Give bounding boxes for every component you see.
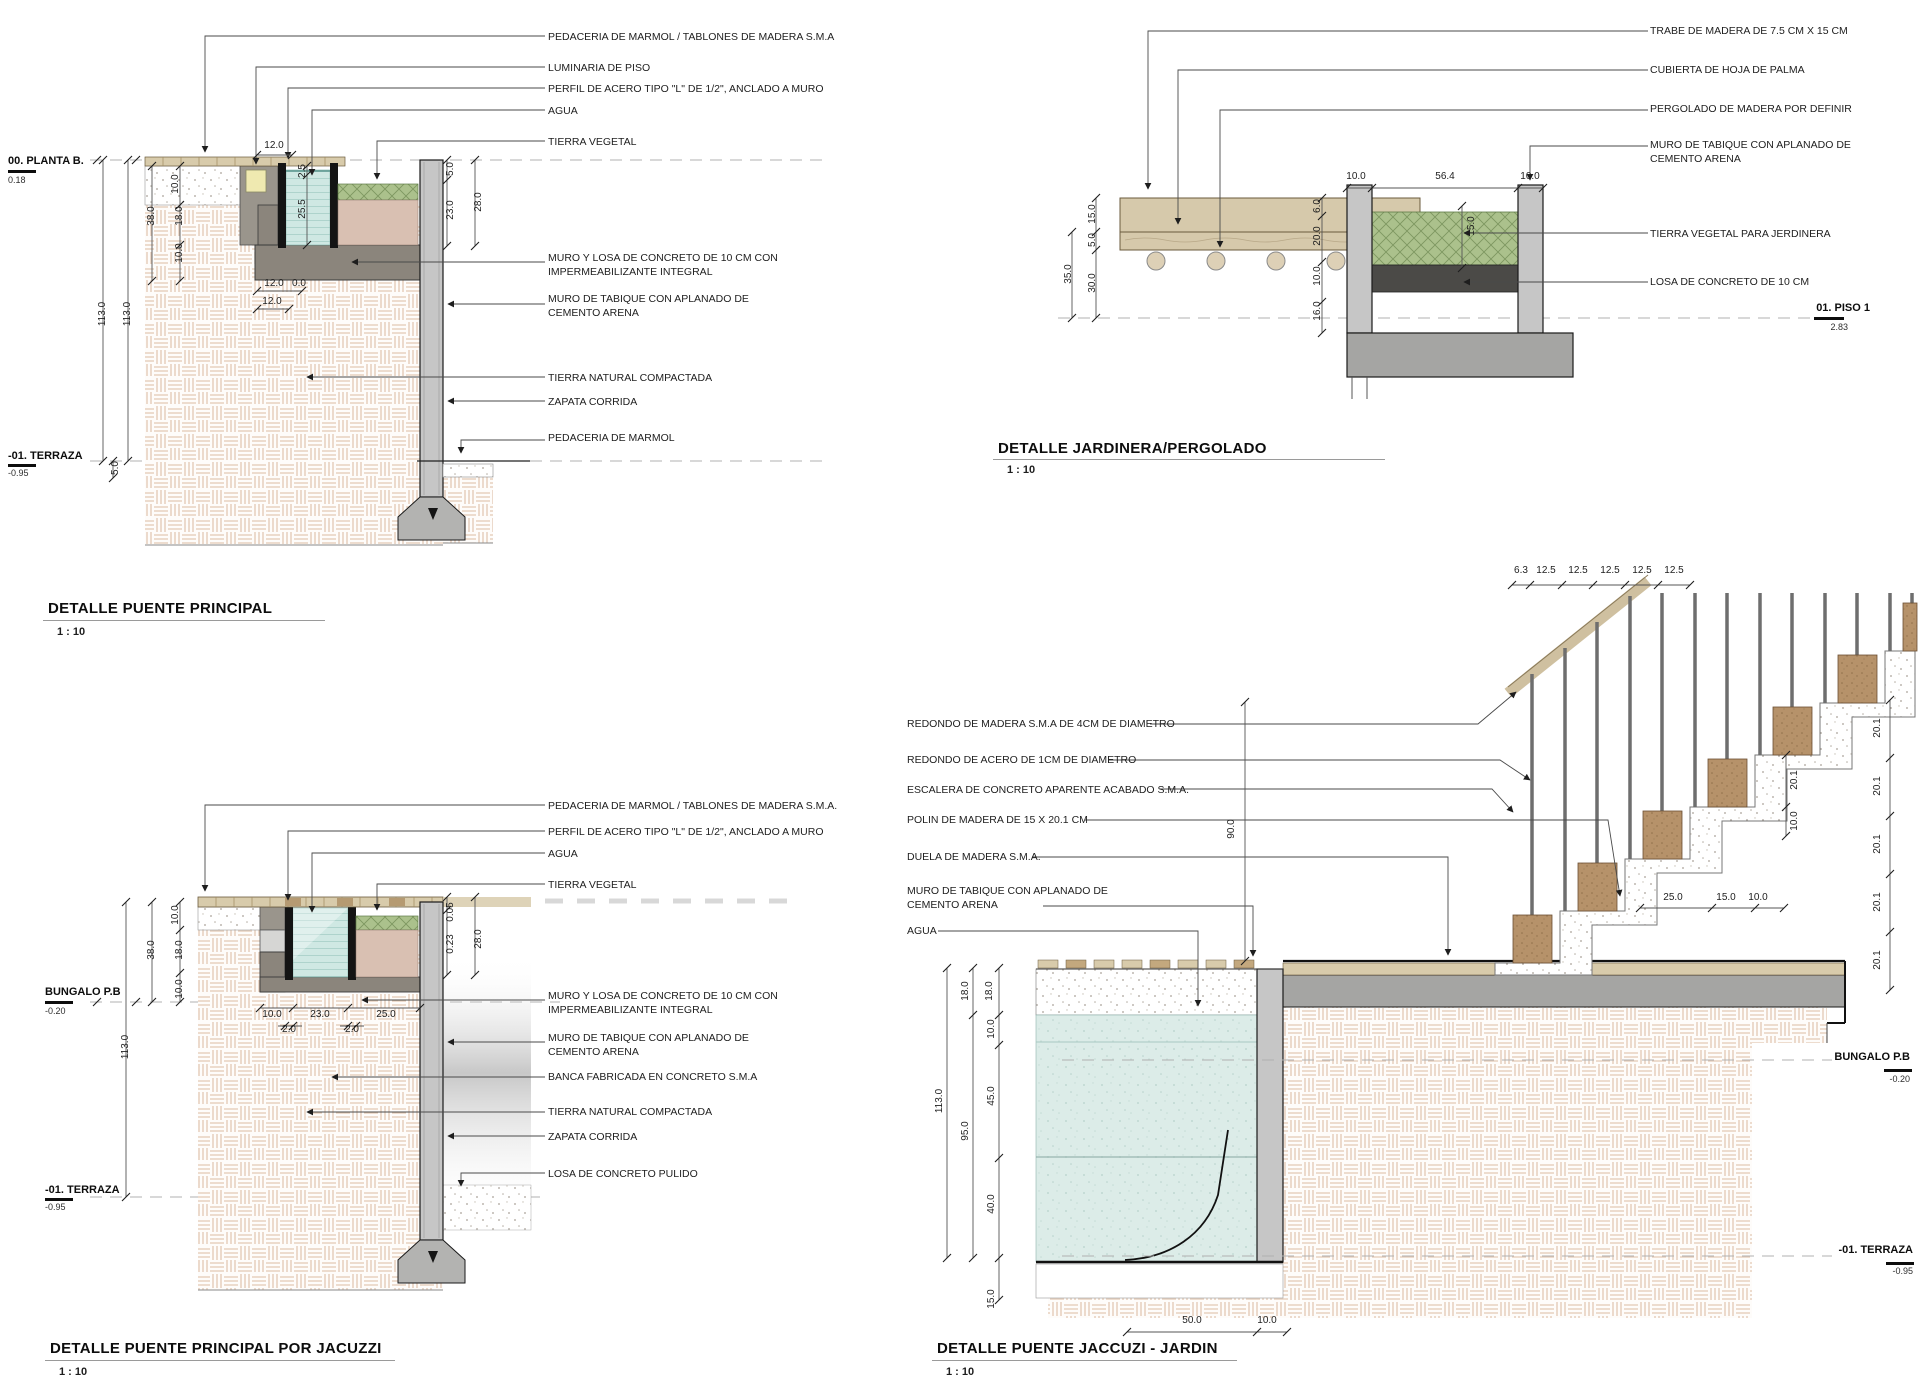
dim-label: 113.0 (123, 291, 133, 337)
level-marker-planta-baja: 00. PLANTA B. (8, 155, 84, 167)
jacuzzi-base-slab (1036, 1264, 1283, 1298)
dim-label: 25.0 (1650, 893, 1696, 903)
level-value: -0.20 (45, 1006, 66, 1016)
dim-label: 30.0 (1088, 260, 1098, 306)
dim-label: 50.0 (1169, 1316, 1215, 1326)
detail-scale: 1 : 10 (59, 1366, 87, 1378)
pool-wall-right (330, 163, 338, 248)
dim-label: 5.0 (111, 445, 121, 491)
dim-label: 38.0 (147, 927, 157, 973)
detail-title: DETALLE PUENTE JACCUZI - JARDIN (937, 1340, 1218, 1357)
dim-label: 10.0 (1507, 172, 1553, 182)
title-rule (45, 1360, 395, 1361)
dim-label: 23.0 (297, 1010, 343, 1020)
callout: BANCA FABRICADA EN CONCRETO S.M.A (548, 1071, 757, 1085)
polished-slab (443, 1185, 531, 1230)
detail-title: DETALLE PUENTE PRINCIPAL POR JACUZZI (50, 1340, 382, 1357)
dim-label: 20.1 (1873, 705, 1883, 751)
level-marker-terraza: -01. TERRAZA (8, 450, 83, 462)
level-bar (45, 1198, 73, 1201)
callout: PERGOLADO DE MADERA POR DEFINIR (1650, 103, 1860, 117)
dim-label: 0.23 (446, 921, 456, 967)
detail-puente-principal-drawing (90, 36, 822, 545)
callout: PEDACERIA DE MARMOL / TABLONES DE MADERA… (548, 31, 834, 45)
dim-label: 16.0 (1313, 288, 1323, 334)
dim-label: 40.0 (987, 1181, 997, 1227)
jacuzzi-rim-concrete (1036, 969, 1283, 1015)
planter-soil (338, 184, 418, 200)
level-marker-bungalo: BUNGALO P.B (1760, 1051, 1910, 1063)
dim-label: 25.5 (298, 186, 308, 232)
planter-wall-left (1347, 185, 1372, 333)
dim-label: 90.0 (1227, 806, 1237, 852)
planter-wall-right (1518, 185, 1543, 333)
concrete-topping (145, 166, 245, 205)
dim-label: 10.0 (175, 230, 185, 276)
concrete-base (1347, 333, 1573, 377)
dim-label: 20.1 (1873, 879, 1883, 925)
concrete-topping (198, 907, 260, 930)
drawing-linework (0, 0, 1920, 1382)
dim-label: 12.0 (249, 297, 295, 307)
callout: REDONDO DE MADERA S.M.A DE 4CM DE DIAMET… (907, 718, 1175, 732)
callout: TIERRA NATURAL COMPACTADA (548, 372, 712, 386)
callout: PEDACERIA DE MARMOL / TABLONES DE MADERA… (548, 800, 837, 814)
callout: ESCALERA DE CONCRETO APARENTE ACABADO S.… (907, 784, 1189, 798)
dim-label: 20.1 (1873, 763, 1883, 809)
planter-soil (356, 916, 418, 930)
dim-label: 20.1 (1790, 757, 1800, 803)
dim-label: 25.0 (363, 1010, 409, 1020)
dim-label: 10.0 (1333, 172, 1379, 182)
dim-label: 56.4 (1422, 172, 1468, 182)
pool-wall-right (348, 905, 356, 980)
dim-label: 10.0 (1735, 893, 1781, 903)
title-rule (43, 620, 325, 621)
dim-label: 10.0 (175, 966, 185, 1012)
dim-label: 38.0 (147, 193, 157, 239)
round-beam (1147, 252, 1165, 270)
callout: CUBIERTA DE HOJA DE PALMA (1650, 64, 1820, 78)
callout: TRABE DE MADERA DE 7.5 CM X 15 CM (1650, 25, 1850, 39)
dim-label: 28.0 (474, 916, 484, 962)
render-artifact-gradient (443, 955, 531, 1217)
title-rule (932, 1360, 1237, 1361)
level-marker-bungalo: BUNGALO P.B (45, 986, 121, 998)
callout: TIERRA VEGETAL PARA JERDINERA (1650, 228, 1831, 242)
detail-scale: 1 : 10 (946, 1366, 974, 1378)
planter-fill (338, 200, 418, 245)
planter-fill (356, 930, 418, 977)
wood-handrail (1508, 581, 1648, 693)
pool-water (286, 170, 330, 245)
dim-label: 28.0 (474, 179, 484, 225)
dim-label: 35.0 (1064, 251, 1074, 297)
dim-label: 5.0 (1088, 217, 1098, 263)
pool-wall-left (285, 905, 293, 980)
level-value: -0.95 (1755, 1266, 1913, 1276)
dim-label: 23.0 (446, 187, 456, 233)
earth-hatch-step (1752, 1007, 1827, 1043)
concrete-bench (260, 930, 285, 952)
detail-title: DETALLE PUENTE PRINCIPAL (48, 600, 272, 617)
level-bar (8, 464, 36, 467)
callout: LOSA DE CONCRETO DE 10 CM (1650, 276, 1809, 290)
callout: PEDACERIA DE MARMOL (548, 432, 675, 446)
callout: MURO DE TABIQUE CON APLANADO DE CEMENTO … (907, 885, 1137, 912)
level-value: 2.83 (1760, 322, 1848, 332)
callout: DUELA DE MADERA S.M.A. (907, 851, 1041, 865)
round-beam (1267, 252, 1285, 270)
dim-label: 95.0 (961, 1108, 971, 1154)
callout: REDONDO DE ACERO DE 1CM DE DIAMETRO (907, 754, 1136, 768)
level-bar (8, 170, 36, 173)
detail-title: DETALLE JARDINERA/PERGOLADO (998, 440, 1267, 457)
jacuzzi-top-tiles (1038, 960, 1254, 968)
callout: MURO DE TABIQUE CON APLANADO DE CEMENTO … (548, 293, 783, 320)
dim-label: 18.0 (961, 968, 971, 1014)
callout: PERFIL DE ACERO TIPO "L" DE 1/2", ANCLAD… (548, 83, 824, 97)
level-value: -0.20 (1760, 1074, 1910, 1084)
wood-posts (1513, 603, 1917, 963)
level-bar (1886, 1262, 1914, 1265)
callout: MURO Y LOSA DE CONCRETO DE 10 CM CON IMP… (548, 990, 798, 1017)
level-marker-piso1: 01. PISO 1 (1760, 302, 1870, 314)
callout: TIERRA NATURAL COMPACTADA (548, 1106, 712, 1120)
dim-label: 15.0 (987, 1276, 997, 1322)
detail-scale: 1 : 10 (1007, 464, 1035, 476)
round-beam (1327, 252, 1345, 270)
callout: AGUA (548, 848, 578, 862)
callout: MURO DE TABIQUE CON APLANADO DE CEMENTO … (1650, 139, 1890, 166)
dim-label: 12.5 (1651, 566, 1697, 576)
dim-label: 2.0 (266, 1025, 312, 1035)
detail-sheet: PEDACERIA DE MARMOL / TABLONES DE MADERA… (0, 0, 1920, 1382)
block-wall (420, 902, 443, 1240)
callout: TIERRA VEGETAL (548, 136, 637, 150)
block-wall (420, 160, 443, 497)
concrete-slab-u (255, 245, 443, 280)
marble-strip (443, 464, 493, 477)
callout: LOSA DE CONCRETO PULIDO (548, 1168, 698, 1182)
callout: ZAPATA CORRIDA (548, 1131, 637, 1145)
level-value: -0.95 (45, 1202, 66, 1212)
detalle-puente-jaccuzi-jardin-drawing (938, 575, 1917, 1336)
dim-label: 15.0 (1467, 203, 1477, 249)
dim-label: 2.0 (329, 1025, 375, 1035)
dim-label: 113.0 (98, 291, 108, 337)
jacuzzi-wall (1257, 969, 1283, 1262)
jacuzzi-water (1036, 1015, 1257, 1262)
round-beam (1207, 252, 1225, 270)
level-bar (45, 1001, 73, 1004)
callout: AGUA (548, 105, 578, 119)
dim-label: 10.0 (1244, 1316, 1290, 1326)
floor-light (246, 170, 266, 192)
callout: AGUA (907, 925, 937, 939)
dim-label: 20.1 (1873, 821, 1883, 867)
level-value: 0.18 (8, 175, 26, 185)
dim-label: 113.0 (935, 1078, 945, 1124)
callout: POLIN DE MADERA DE 15 X 20.1 CM (907, 814, 1088, 828)
dim-label: 113.0 (121, 1024, 131, 1070)
callout: TIERRA VEGETAL (548, 879, 637, 893)
detalle-jardinera-drawing (1058, 31, 1812, 399)
level-value: -0.95 (8, 468, 29, 478)
level-marker-terraza: -01. TERRAZA (45, 1184, 120, 1196)
callout: PERFIL DE ACERO TIPO "L" DE 1/2", ANCLAD… (548, 826, 824, 840)
callout: ZAPATA CORRIDA (548, 396, 637, 410)
callout: LUMINARIA DE PISO (548, 62, 650, 76)
wood-deck (198, 897, 443, 907)
detail-scale: 1 : 10 (57, 626, 85, 638)
concrete-slab (1283, 975, 1845, 1007)
dim-label: 20.1 (1873, 937, 1883, 983)
callout: MURO Y LOSA DE CONCRETO DE 10 CM CON IMP… (548, 252, 798, 279)
concrete-slab-10cm (1372, 265, 1518, 292)
planter-soil (1372, 212, 1518, 265)
dim-label: 10.0 (249, 1010, 295, 1020)
pool-wall-left (278, 163, 286, 248)
dim-label: 45.0 (987, 1073, 997, 1119)
callout: MURO DE TABIQUE CON APLANADO DE CEMENTO … (548, 1032, 783, 1059)
level-bar (1814, 317, 1844, 320)
dim-label: 10.0 (987, 1006, 997, 1052)
dim-label: 5.0 (446, 146, 456, 192)
dim-label: 12.0 (251, 141, 297, 151)
dim-label: 10.0 (1790, 798, 1800, 844)
level-bar (1884, 1069, 1912, 1072)
level-marker-terraza: -01. TERRAZA (1755, 1244, 1913, 1256)
dim-label: 0.0 (276, 279, 322, 289)
title-rule (993, 459, 1385, 460)
